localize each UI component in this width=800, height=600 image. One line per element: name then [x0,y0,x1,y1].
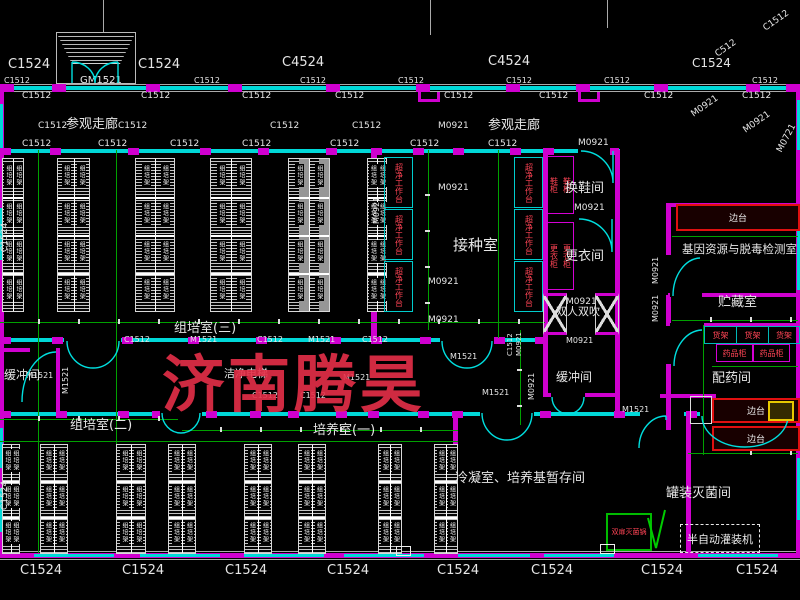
door-arc [22,352,56,402]
watermark-text: 济南腾昊 [162,334,426,424]
cad-floorplan-canvas: 组培架组培架组培架组培架组培架组培架组培架组培架组培架组培架组培架组培架组培架组… [0,0,800,600]
door-arc [581,151,613,183]
door-arc [674,330,702,366]
door-arc [72,62,118,83]
door-arc [552,397,584,414]
door-arc [67,341,119,368]
door-arc [639,416,666,448]
door-arcs-layer [0,0,800,600]
door-arc [579,219,612,252]
yellow-fixture [768,401,794,421]
door-arc [442,341,492,368]
door-arc [482,413,532,440]
check-mark [648,510,665,548]
door-arc [673,258,700,296]
